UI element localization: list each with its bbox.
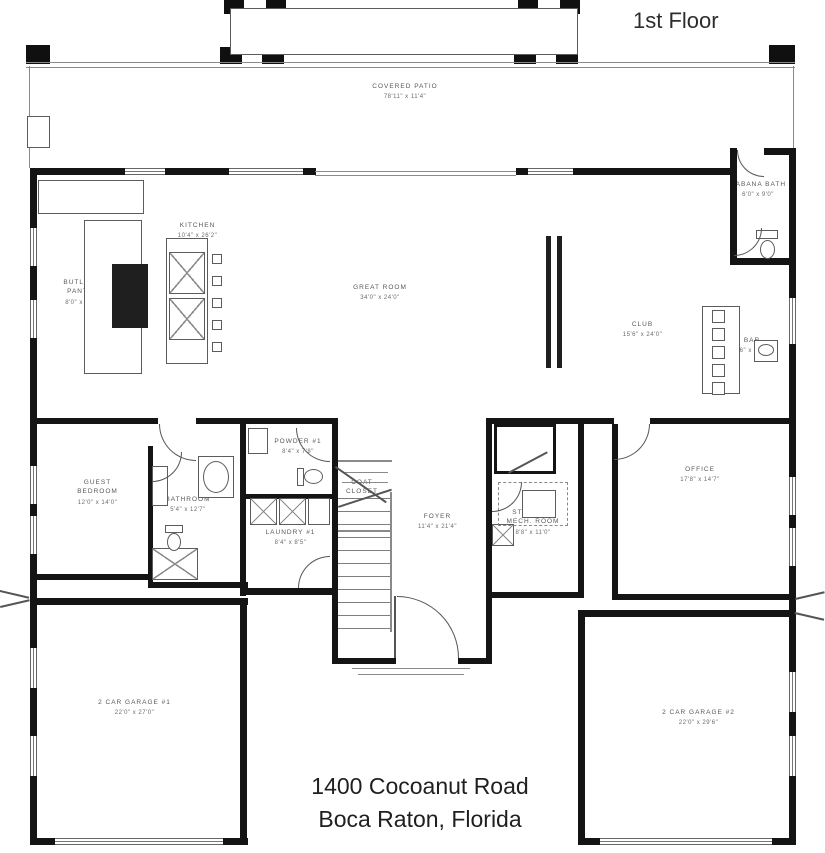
line bbox=[315, 175, 516, 176]
room-label-cabana-bath: CABANA BATH 6'0" x 9'0" bbox=[729, 180, 787, 200]
address: 1400 Cocoanut Road Boca Raton, Florida bbox=[285, 770, 555, 837]
stairs-tread bbox=[338, 563, 390, 564]
window bbox=[789, 528, 796, 566]
cabana-door-arc bbox=[737, 150, 764, 177]
eave-line bbox=[0, 590, 29, 598]
stool bbox=[712, 346, 725, 359]
window bbox=[30, 648, 37, 688]
stairs-tread bbox=[338, 511, 390, 512]
room-label-club: CLUB 15'6" x 24'0" bbox=[595, 320, 690, 340]
stool bbox=[212, 276, 222, 286]
wall bbox=[764, 148, 796, 155]
laundry-door-arc bbox=[298, 556, 330, 588]
stool bbox=[712, 364, 725, 377]
window bbox=[229, 168, 303, 175]
eave-line bbox=[0, 599, 30, 607]
stairs-tread bbox=[338, 576, 390, 577]
island-counter bbox=[169, 252, 205, 294]
toilet-tank bbox=[165, 525, 183, 533]
wall bbox=[578, 610, 796, 617]
fireplace-wall bbox=[546, 236, 551, 368]
window bbox=[30, 228, 37, 266]
tub-basin bbox=[203, 461, 229, 493]
line bbox=[26, 67, 795, 68]
toilet-bowl bbox=[760, 240, 775, 259]
stool bbox=[212, 254, 222, 264]
window bbox=[528, 168, 573, 175]
stairs-tread bbox=[338, 602, 390, 603]
wall bbox=[488, 592, 582, 598]
toilet-bowl bbox=[304, 469, 323, 484]
kitchen-counter bbox=[38, 180, 144, 214]
wall bbox=[578, 610, 585, 845]
page-title: 1st Floor bbox=[633, 8, 793, 34]
outdoor-grill-icon bbox=[27, 116, 50, 148]
line bbox=[342, 482, 388, 483]
line bbox=[358, 674, 464, 675]
wall bbox=[196, 418, 246, 424]
address-line2: Boca Raton, Florida bbox=[285, 803, 555, 836]
dryer bbox=[279, 498, 306, 525]
stairs-tread bbox=[338, 537, 390, 538]
line bbox=[315, 171, 516, 172]
wall bbox=[30, 418, 158, 424]
stairs-tread bbox=[338, 589, 390, 590]
line bbox=[342, 472, 388, 473]
stool bbox=[712, 310, 725, 323]
laundry-sink bbox=[308, 498, 330, 525]
room-label-foyer: FOYER 11'4" x 21'4" bbox=[395, 512, 480, 532]
stool bbox=[212, 320, 222, 330]
room-label-garage-1: 2 CAR GARAGE #1 22'0" x 27'0" bbox=[72, 698, 197, 718]
window bbox=[30, 736, 37, 776]
cabana-hall-door-arc bbox=[734, 228, 762, 256]
address-line1: 1400 Cocoanut Road bbox=[285, 770, 555, 803]
line bbox=[793, 66, 794, 148]
powder-sink bbox=[248, 428, 268, 454]
wall bbox=[650, 418, 796, 424]
wall bbox=[573, 168, 733, 175]
wall bbox=[240, 418, 246, 596]
room-label-guest-bedroom: GUEST BEDROOM 12'0" x 14'0" bbox=[55, 478, 140, 508]
toilet-bowl bbox=[167, 533, 181, 551]
toilet-tank bbox=[297, 468, 304, 486]
wall bbox=[730, 258, 796, 265]
line bbox=[338, 530, 392, 532]
mech-unit bbox=[492, 524, 514, 546]
stool bbox=[212, 342, 222, 352]
stool bbox=[712, 382, 725, 395]
line bbox=[26, 62, 795, 63]
stairs-tread bbox=[338, 615, 390, 616]
wall bbox=[148, 582, 248, 588]
wall bbox=[30, 574, 154, 580]
room-label-covered-patio: COVERED PATIO 78'11" x 11'4" bbox=[345, 82, 465, 102]
eave-line bbox=[795, 591, 825, 599]
room-label-great-room: GREAT ROOM 34'0" x 24'0" bbox=[320, 283, 440, 303]
line bbox=[338, 460, 392, 462]
room-label-laundry: LAUNDRY #1 8'4" x 8'5" bbox=[248, 528, 333, 548]
fireplace-wall bbox=[557, 236, 562, 368]
wall bbox=[582, 418, 614, 424]
line bbox=[352, 668, 470, 669]
floor-plan: 1st Floor COVERED PATIO 78'11" x 11'4" C… bbox=[0, 0, 825, 853]
wall bbox=[165, 168, 229, 175]
wall bbox=[30, 598, 248, 605]
garage-door bbox=[600, 838, 772, 845]
wall bbox=[246, 418, 334, 424]
garage-door bbox=[55, 838, 223, 845]
window bbox=[789, 477, 796, 515]
range-appliance bbox=[112, 264, 148, 328]
window bbox=[789, 672, 796, 712]
office-door-arc bbox=[614, 424, 650, 460]
wall bbox=[578, 424, 584, 598]
elevator-cab bbox=[494, 424, 556, 474]
island-counter bbox=[169, 298, 205, 340]
stairs-tread bbox=[338, 550, 390, 551]
stool bbox=[712, 328, 725, 341]
window bbox=[30, 516, 37, 554]
entry-door-leaf bbox=[395, 596, 397, 658]
washer bbox=[250, 498, 277, 525]
wall bbox=[30, 168, 125, 175]
line bbox=[390, 492, 392, 632]
stool bbox=[212, 298, 222, 308]
window bbox=[30, 466, 37, 504]
bar-sink bbox=[758, 344, 774, 356]
wall bbox=[612, 594, 796, 600]
wall bbox=[240, 598, 247, 845]
wall bbox=[458, 658, 492, 664]
window bbox=[789, 736, 796, 776]
room-label-garage-2: 2 CAR GARAGE #2 22'0" x 29'6" bbox=[636, 708, 761, 728]
room-label-office: OFFICE 17'8" x 14'7" bbox=[655, 465, 745, 485]
window bbox=[30, 300, 37, 338]
stairs-tread bbox=[338, 628, 390, 629]
wall bbox=[246, 588, 338, 595]
wall bbox=[516, 168, 528, 175]
porch-outline bbox=[230, 8, 578, 55]
bathroom-door-arc bbox=[152, 452, 182, 482]
eave-line bbox=[795, 612, 825, 620]
wall bbox=[332, 658, 396, 664]
window bbox=[789, 298, 796, 344]
entry-door-arc bbox=[397, 596, 459, 658]
shower bbox=[152, 548, 198, 580]
window bbox=[125, 168, 165, 175]
stairs-tread bbox=[338, 524, 390, 525]
